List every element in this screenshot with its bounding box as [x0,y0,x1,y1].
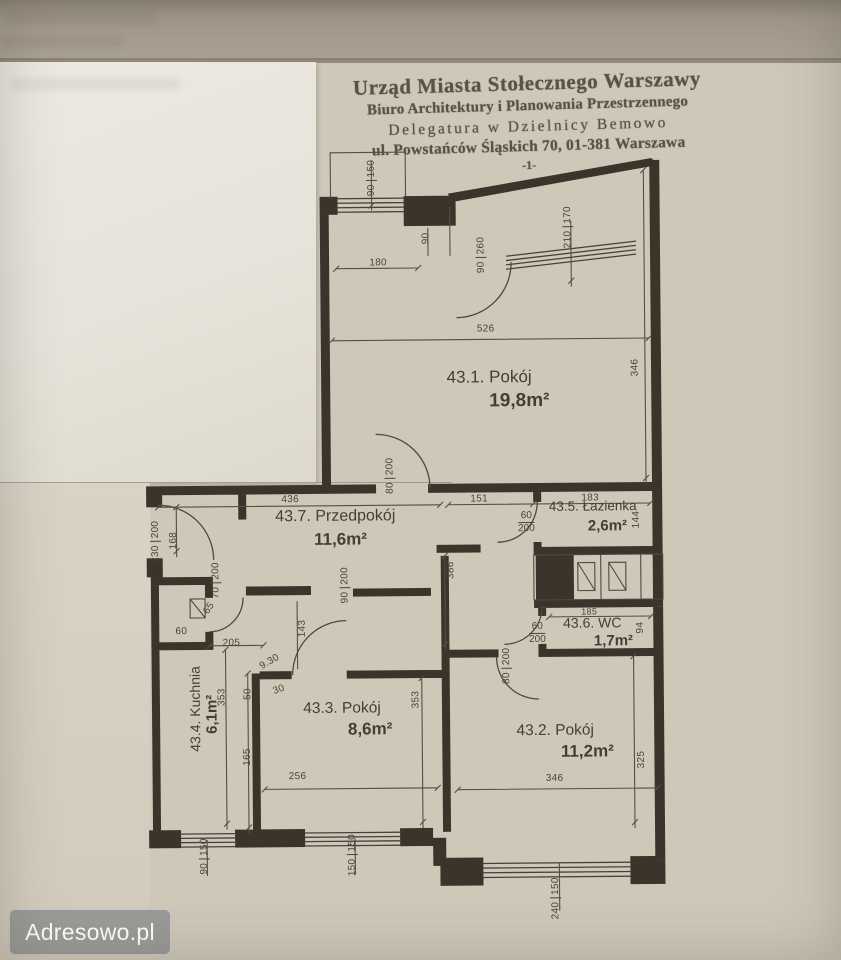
dim-room2-width: 346 [528,773,582,784]
dim-bath-door-d: 200 [518,523,535,535]
dim-room3-door-n: 90 [339,589,350,607]
dim-wc-height: 94 [635,608,646,648]
dim-room2-height: 325 [636,740,647,780]
dim-closet-width: 60 [165,626,197,637]
dim-room2-door-d: 200 [501,645,512,670]
dim-bath-width: 183 [564,492,616,503]
dim-room3-window: 150150 [347,824,359,886]
dim-room3-door-d: 200 [339,564,350,589]
dim-kitchen-window: 90150 [199,827,211,885]
floorplan-drawing: 43.1. Pokój 19,8m² 43.7. Przedpokój 11,6… [0,0,841,960]
room-label-43-2-name: 43.2. Pokój [500,721,610,740]
dim-bath-door-n: 60 [519,510,534,523]
dim-entry-door-d: 200 [150,518,161,543]
scanned-floorplan-photo: Urząd Miasta Stołecznego Warszawy Biuro … [0,0,841,960]
room-label-43-7-area: 11,6m² [280,529,400,550]
room-label-43-7-name: 43.7. Przedpokój [240,507,430,527]
dim-room1-window: 210170 [562,201,573,253]
dim-entry-door: 230200 [150,513,162,571]
dim-niche-window: 90150 [366,152,377,204]
dim-kitchen-window-n: 90 [199,860,210,878]
dim-room1-width: 526 [456,323,516,335]
room-label-43-3-name: 43.3. Pokój [287,699,397,718]
room-label-43-3-area: 8,6m² [320,719,420,740]
dim-bay-window-n: 240 [550,899,561,923]
dim-pass-width: 205 [209,637,253,648]
dim-room1-window-d: 170 [562,203,573,228]
dim-room3-door: 90200 [339,559,350,611]
floorplan-linework [0,0,841,960]
dim-bath-door: 60 200 [508,510,544,534]
dim-entry-door-n: 230 [150,542,161,566]
dim-niche-width: 180 [358,257,398,268]
adresowo-watermark-label: Adresowo.pl [25,919,155,946]
dim-room1-window-n: 210 [562,228,573,252]
dim-room1-height: 346 [629,348,640,388]
dim-balcony-door-d: 260 [475,234,486,259]
dim-niche-window-n: 90 [366,181,377,199]
dim-room2-door: 80200 [501,640,512,692]
dim-bay-window: 240150 [550,867,562,929]
dim-bath-height: 144 [631,500,642,540]
dim-pass-height: 143 [297,608,308,648]
dim-room3-height: 353 [410,680,421,720]
dim-room3-window-n: 150 [347,856,358,880]
dim-balcony-door: 90260 [475,229,486,281]
dim-niche-depth: 90 [420,218,431,258]
dim-room2-door-n: 80 [501,669,512,687]
dim-hall-width: 436 [258,494,322,506]
dim-hall-leg: 386 [445,550,456,590]
dim-wc-width: 185 [561,607,617,617]
dim-balcony-door-n: 90 [476,258,487,276]
dim-wc-door: 60 200 [519,621,555,645]
dim-room3-window-d: 150 [347,831,358,856]
dim-closet-door-d: 200 [210,559,221,584]
dim-closet-door: 70200 [210,555,221,605]
dim-niche-window-d: 150 [366,157,377,182]
dim-bay-window-d: 150 [550,874,561,899]
dim-seg-151: 151 [453,493,505,504]
dim-kitchen-50: 50 [242,674,253,714]
dim-room1-door: 80200 [384,450,395,502]
room-label-43-2-area: 11,2m² [537,741,637,762]
dim-room3-width: 256 [271,771,325,782]
dim-kitchen-height: 353 [216,677,227,717]
dim-closet-door-n: 70 [210,584,221,602]
dim-wc-door-d: 200 [529,633,546,645]
dim-room1-door-n: 80 [384,479,395,497]
room-label-43-4-name: 43.4. Kuchnia [186,644,203,774]
adresowo-watermark: Adresowo.pl [8,908,172,956]
room-label-43-1-area: 19,8m² [439,389,599,412]
dim-entry-height: 168 [168,521,179,561]
room-label-43-1-name: 43.1. Pokój [399,367,579,389]
dim-kitchen-165: 165 [242,737,253,777]
dim-wc-door-n: 60 [530,621,545,634]
dim-room1-door-d: 200 [384,455,395,480]
dim-kitchen-window-d: 150 [199,835,210,860]
